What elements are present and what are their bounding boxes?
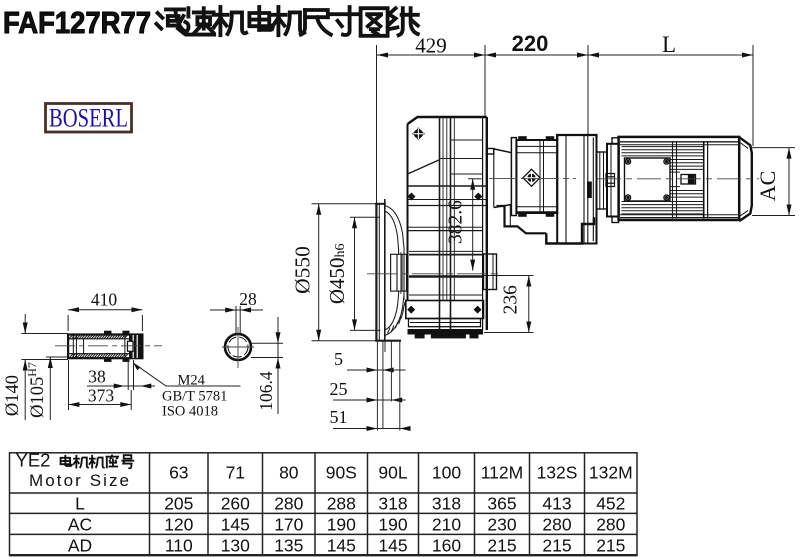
svg-text:145: 145 <box>221 515 250 535</box>
svg-text:135: 135 <box>274 536 303 556</box>
svg-text:318: 318 <box>378 494 407 514</box>
svg-text:288: 288 <box>327 494 356 514</box>
svg-text:BOSERL: BOSERL <box>49 104 128 133</box>
svg-text:90L: 90L <box>378 463 407 483</box>
svg-text:51: 51 <box>330 407 348 427</box>
svg-text:190: 190 <box>327 515 356 535</box>
svg-text:110: 110 <box>165 536 193 556</box>
svg-text:112M: 112M <box>481 463 523 483</box>
svg-text:YE2: YE2 <box>16 450 51 471</box>
svg-text:429: 429 <box>415 34 447 58</box>
svg-text:230: 230 <box>487 515 516 535</box>
svg-text:236: 236 <box>500 285 521 315</box>
svg-text:373: 373 <box>88 386 115 406</box>
svg-text:Ø105H7: Ø105H7 <box>25 362 48 418</box>
svg-text:160: 160 <box>432 536 461 556</box>
svg-text:63: 63 <box>169 463 188 483</box>
svg-text:Ø450h6: Ø450h6 <box>325 243 349 304</box>
svg-text:120: 120 <box>164 515 193 535</box>
svg-text:AC: AC <box>755 171 780 202</box>
svg-text:38: 38 <box>88 367 106 387</box>
svg-text:260: 260 <box>221 494 250 514</box>
svg-text:170: 170 <box>274 515 303 535</box>
svg-text:L: L <box>75 494 85 514</box>
svg-text:145: 145 <box>378 536 407 556</box>
svg-text:L: L <box>662 32 676 57</box>
svg-text:410: 410 <box>91 290 118 310</box>
svg-text:Ø140: Ø140 <box>3 375 23 416</box>
svg-text:80: 80 <box>279 463 299 483</box>
svg-text:M24: M24 <box>178 373 206 389</box>
svg-text:130: 130 <box>221 536 250 556</box>
svg-text:ISO 4018: ISO 4018 <box>162 404 218 420</box>
svg-text:413: 413 <box>542 494 571 514</box>
svg-text:71: 71 <box>226 463 245 483</box>
svg-text:365: 365 <box>487 494 516 514</box>
svg-text:GB/T 5781: GB/T 5781 <box>162 389 227 405</box>
svg-text:190: 190 <box>378 515 407 535</box>
svg-text:145: 145 <box>327 536 356 556</box>
svg-text:132M: 132M <box>589 463 633 483</box>
svg-text:452: 452 <box>596 494 625 514</box>
svg-text:220: 220 <box>512 31 549 56</box>
svg-text:280: 280 <box>596 515 625 535</box>
svg-text:5: 5 <box>334 349 343 369</box>
svg-text:AD: AD <box>68 536 92 556</box>
svg-text:215: 215 <box>487 536 516 556</box>
svg-text:Motor Size: Motor Size <box>29 471 129 490</box>
svg-text:280: 280 <box>274 494 303 514</box>
svg-text:382.6: 382.6 <box>445 200 466 244</box>
svg-text:280: 280 <box>542 515 571 535</box>
svg-text:318: 318 <box>432 494 461 514</box>
svg-text:132S: 132S <box>537 463 578 483</box>
svg-text:100: 100 <box>432 463 461 483</box>
svg-text:25: 25 <box>330 379 348 399</box>
svg-text:AC: AC <box>68 515 92 535</box>
svg-text:205: 205 <box>164 494 193 514</box>
svg-text:215: 215 <box>542 536 571 556</box>
svg-text:210: 210 <box>432 515 461 535</box>
svg-text:106.4: 106.4 <box>256 371 276 411</box>
svg-text:90S: 90S <box>326 463 357 483</box>
svg-text:FAF127R77: FAF127R77 <box>3 5 151 40</box>
svg-text:Ø550: Ø550 <box>290 246 314 294</box>
svg-text:28: 28 <box>239 289 257 309</box>
svg-text:215: 215 <box>596 536 625 556</box>
